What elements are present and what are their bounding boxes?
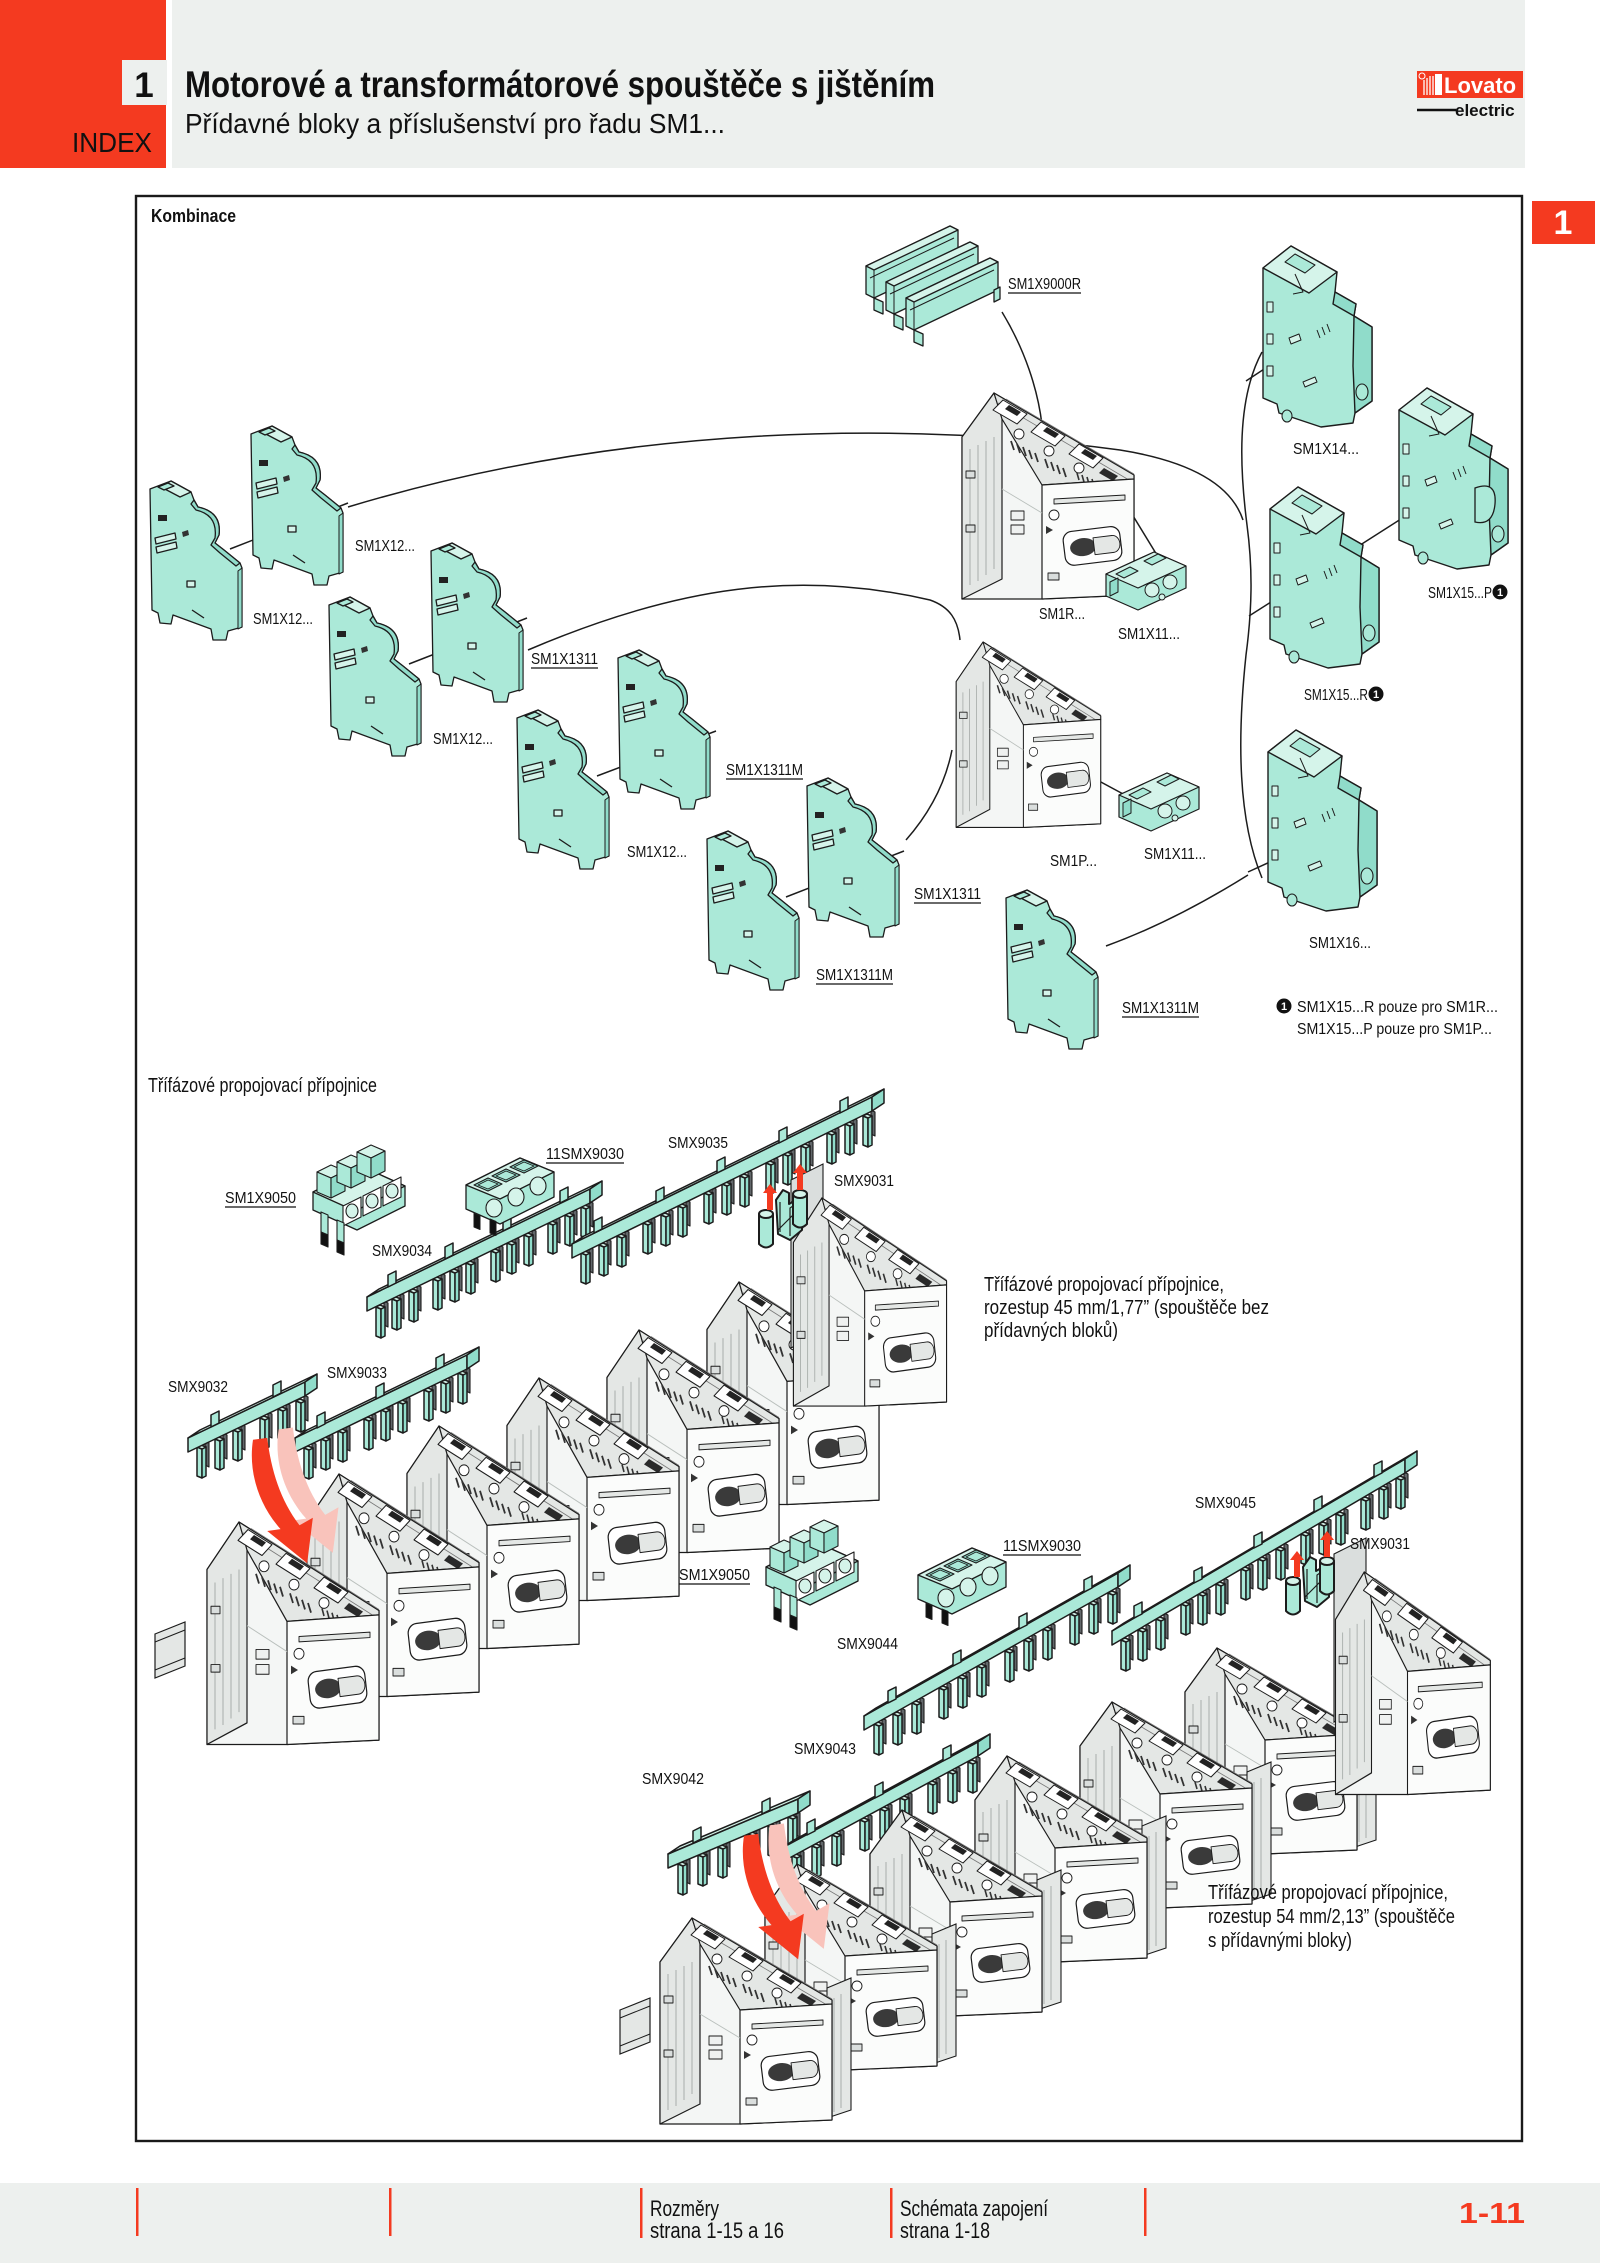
svg-text:Kombinace: Kombinace [151, 206, 236, 226]
svg-text:rozestup 45 mm/1,77” (spouštěč: rozestup 45 mm/1,77” (spouštěče bez [984, 1297, 1269, 1319]
svg-text:přídavných bloků): přídavných bloků) [984, 1320, 1118, 1342]
svg-text:SMX9042: SMX9042 [642, 1771, 704, 1788]
svg-text:SM1X1311M: SM1X1311M [816, 967, 893, 984]
svg-text:SM1X12...: SM1X12... [433, 731, 493, 748]
svg-text:SMX9043: SMX9043 [794, 1741, 856, 1758]
svg-text:SM1X11...: SM1X11... [1118, 626, 1180, 643]
svg-text:Třífázové propojovací přípojni: Třífázové propojovací přípojnice [148, 1075, 377, 1097]
svg-text:SM1X1311: SM1X1311 [914, 886, 981, 903]
svg-text:Přídavné bloky a příslušenství: Přídavné bloky a příslušenství pro řadu … [185, 108, 725, 139]
svg-text:SM1X12...: SM1X12... [355, 538, 415, 555]
svg-text:SM1X1311M: SM1X1311M [1122, 1000, 1199, 1017]
svg-text:SMX9032: SMX9032 [168, 1379, 228, 1396]
svg-text:1: 1 [1373, 689, 1379, 701]
svg-text:SM1X15...R: SM1X15...R [1304, 687, 1368, 704]
svg-text:INDEX: INDEX [72, 127, 152, 158]
svg-text:Třífázové propojovací přípojni: Třífázové propojovací přípojnice, [1208, 1882, 1448, 1904]
svg-text:SM1X1311M: SM1X1311M [726, 762, 803, 779]
svg-text:SMX9044: SMX9044 [837, 1636, 898, 1653]
svg-text:SM1X1311: SM1X1311 [531, 651, 598, 668]
svg-text:SMX9035: SMX9035 [668, 1135, 728, 1152]
svg-text:1: 1 [1554, 204, 1573, 242]
svg-text:1-11: 1-11 [1459, 2198, 1525, 2230]
svg-text:Třífázové propojovací přípojni: Třífázové propojovací přípojnice, [984, 1274, 1224, 1296]
svg-text:SM1X14...: SM1X14... [1293, 441, 1359, 458]
svg-text:SMX9045: SMX9045 [1195, 1495, 1256, 1512]
svg-text:Lovato: Lovato [1444, 73, 1516, 98]
svg-text:SM1X15...R pouze pro SM1R...: SM1X15...R pouze pro SM1R... [1297, 999, 1498, 1016]
svg-text:strana 1-18: strana 1-18 [900, 2218, 990, 2243]
svg-text:11SMX9030: 11SMX9030 [1003, 1538, 1081, 1555]
svg-text:11SMX9030: 11SMX9030 [546, 1146, 624, 1163]
svg-text:s přídavnými bloky): s přídavnými bloky) [1208, 1930, 1352, 1952]
svg-text:SM1X9000R: SM1X9000R [1008, 276, 1081, 293]
svg-text:SM1R...: SM1R... [1039, 606, 1085, 623]
svg-text:electric: electric [1455, 101, 1515, 120]
svg-text:1: 1 [134, 66, 153, 105]
svg-text:SM1X16...: SM1X16... [1309, 935, 1371, 952]
svg-text:SMX9033: SMX9033 [327, 1365, 387, 1382]
svg-text:SM1X11...: SM1X11... [1144, 846, 1206, 863]
svg-text:SM1X12...: SM1X12... [627, 844, 687, 861]
svg-text:Motorové a transformátorové sp: Motorové a transformátorové spouštěče s … [185, 64, 935, 105]
svg-text:SM1X9050: SM1X9050 [225, 1190, 296, 1207]
svg-text:1: 1 [1497, 587, 1503, 599]
svg-text:1: 1 [1281, 1001, 1287, 1013]
svg-text:strana 1-15 a 16: strana 1-15 a 16 [650, 2218, 784, 2243]
svg-text:SMX9034: SMX9034 [372, 1243, 432, 1260]
svg-text:SM1X9050: SM1X9050 [679, 1567, 750, 1584]
svg-text:SM1P...: SM1P... [1050, 853, 1097, 870]
svg-text:rozestup 54 mm/2,13” (spouštěč: rozestup 54 mm/2,13” (spouštěče [1208, 1906, 1455, 1928]
svg-text:SMX9031: SMX9031 [834, 1173, 894, 1190]
svg-text:SMX9031: SMX9031 [1350, 1536, 1410, 1553]
svg-text:SM1X12...: SM1X12... [253, 611, 313, 628]
svg-text:SM1X15...P: SM1X15...P [1428, 585, 1492, 602]
svg-text:SM1X15...P pouze pro SM1P...: SM1X15...P pouze pro SM1P... [1297, 1021, 1492, 1038]
